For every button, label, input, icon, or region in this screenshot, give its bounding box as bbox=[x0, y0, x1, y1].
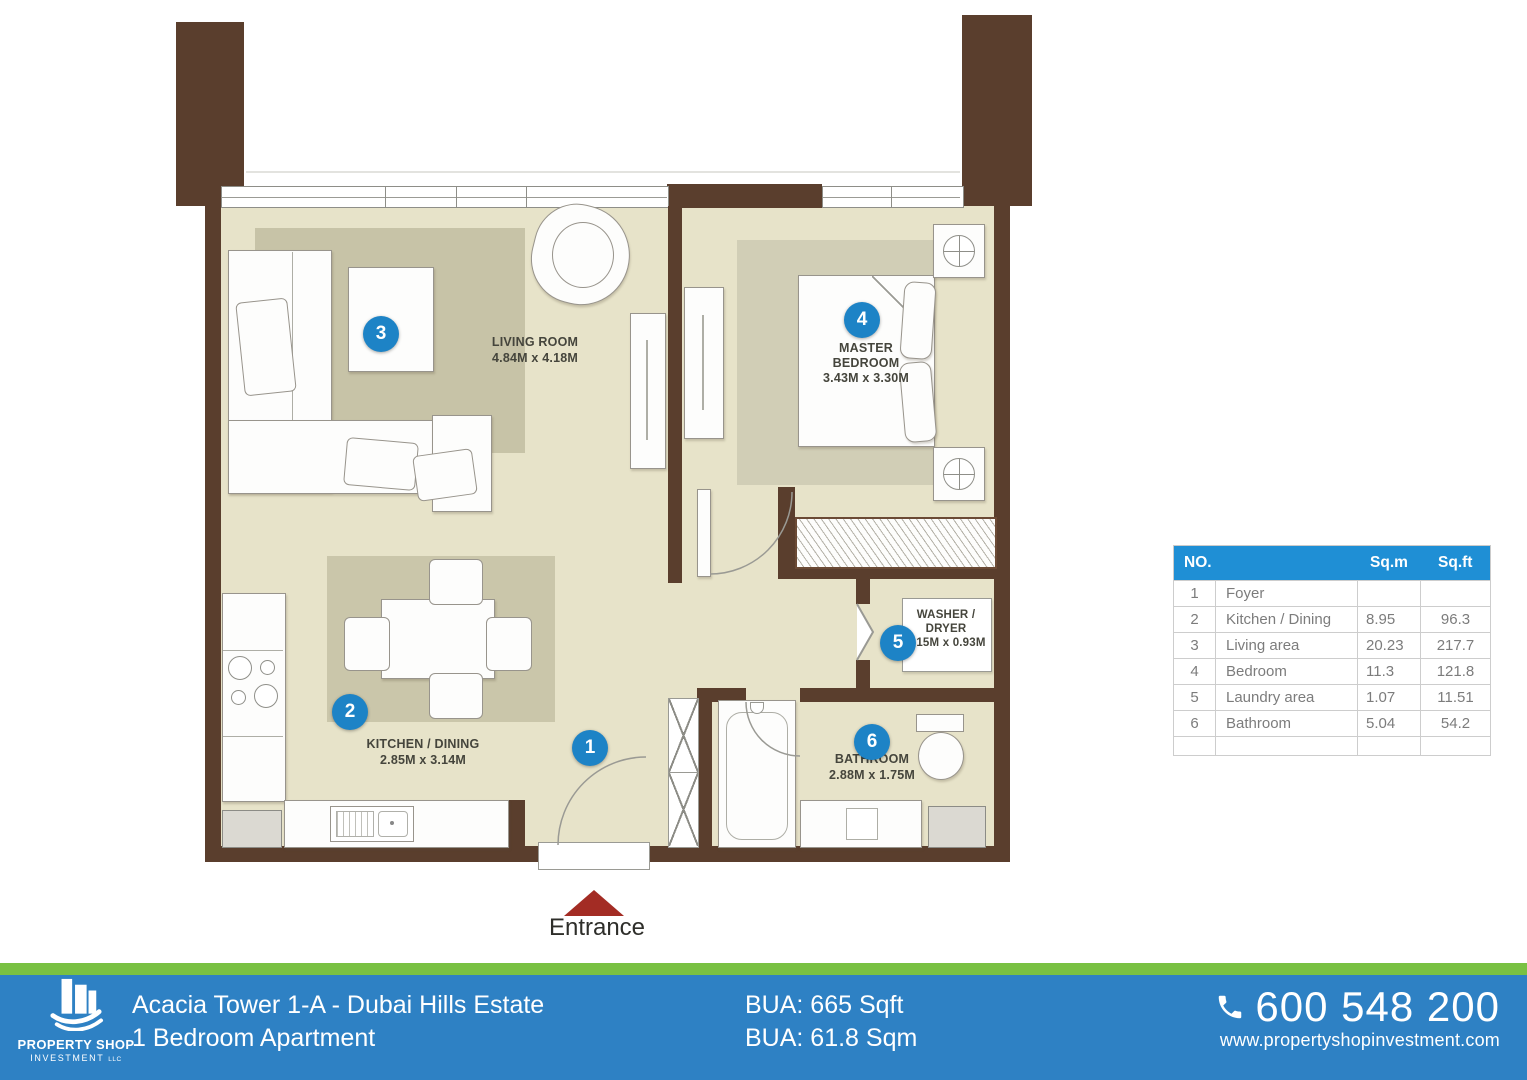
entrance-label: Entrance bbox=[512, 914, 682, 942]
kitchen-dining-label: KITCHEN / DINING 2.85M x 3.14M bbox=[323, 736, 523, 768]
logo-llc: LLC bbox=[108, 1056, 121, 1063]
wall-pillar-left bbox=[176, 22, 244, 206]
tv-console-living bbox=[630, 313, 666, 469]
room-name: DRYER bbox=[902, 622, 990, 636]
wall-pillar-right bbox=[962, 15, 1032, 206]
phone-row: 600 548 200 bbox=[1215, 985, 1500, 1029]
stove-burner bbox=[228, 656, 252, 680]
sink-drainer bbox=[336, 811, 374, 837]
vanity-sink bbox=[846, 808, 878, 840]
cell-sqft: 54.2 bbox=[1421, 711, 1491, 737]
room-dims: 3.43M x 3.30M bbox=[791, 371, 941, 386]
footer-bar: PROPERTY SHOP INVESTMENT LLC Acacia Towe… bbox=[0, 975, 1527, 1080]
room-name: WASHER / bbox=[902, 608, 990, 622]
dining-chair bbox=[429, 673, 483, 719]
stove-burner bbox=[260, 660, 275, 675]
cell-no: 3 bbox=[1174, 633, 1216, 659]
closet-cell bbox=[669, 699, 698, 773]
closet-cell bbox=[669, 773, 698, 846]
room-marker-5-laundry: 5 bbox=[880, 625, 916, 661]
window-pane bbox=[823, 187, 892, 207]
room-name: LIVING ROOM bbox=[435, 334, 635, 350]
cell-sqm: 8.95 bbox=[1358, 607, 1421, 633]
cell-empty bbox=[1216, 737, 1358, 756]
room-marker-3-living: 3 bbox=[363, 316, 399, 352]
company-logo: PROPERTY SHOP INVESTMENT LLC bbox=[14, 977, 138, 1077]
table-row: 2 Kitchen / Dining 8.95 96.3 bbox=[1174, 607, 1491, 633]
project-title-line2: 1 Bedroom Apartment bbox=[132, 1022, 544, 1055]
footer-green-strip bbox=[0, 963, 1527, 975]
project-title-line1: Acacia Tower 1-A - Dubai Hills Estate bbox=[132, 989, 544, 1022]
dining-chair bbox=[344, 617, 390, 671]
col-header-no: NO. bbox=[1174, 546, 1358, 581]
entrance-threshold bbox=[538, 842, 650, 870]
project-title: Acacia Tower 1-A - Dubai Hills Estate 1 … bbox=[132, 989, 544, 1055]
col-header-sqft: Sq.ft bbox=[1421, 546, 1491, 581]
cell-sqm bbox=[1358, 581, 1421, 607]
master-bedroom-label: MASTER BEDROOM 3.43M x 3.30M bbox=[791, 341, 941, 386]
table-row: 4 Bedroom 11.3 121.8 bbox=[1174, 659, 1491, 685]
lamp-icon bbox=[943, 235, 975, 267]
window-bedroom bbox=[822, 186, 964, 208]
room-dims: 2.88M x 1.75M bbox=[772, 767, 972, 783]
cell-sqm: 20.23 bbox=[1358, 633, 1421, 659]
wall-kitchen-stub bbox=[507, 800, 525, 846]
dining-chair bbox=[486, 617, 532, 671]
sofa-cushion bbox=[235, 298, 297, 397]
cell-sqm: 1.07 bbox=[1358, 685, 1421, 711]
table-row: 3 Living area 20.23 217.7 bbox=[1174, 633, 1491, 659]
phone-icon bbox=[1215, 992, 1245, 1022]
table-row: 1 Foyer bbox=[1174, 581, 1491, 607]
bua-sqm: BUA: 61.8 Sqm bbox=[745, 1022, 917, 1055]
dining-table bbox=[381, 599, 495, 679]
cell-empty bbox=[1421, 737, 1491, 756]
room-dims: 2.85M x 3.14M bbox=[323, 752, 523, 768]
armchair-seat bbox=[552, 222, 614, 288]
window-pane bbox=[386, 187, 457, 207]
cell-no: 6 bbox=[1174, 711, 1216, 737]
website-url: www.propertyshopinvestment.com bbox=[1215, 1030, 1500, 1051]
wall-bottom-right bbox=[648, 846, 1010, 862]
wall-foyer-bathroom-divider bbox=[697, 688, 712, 846]
wardrobe bbox=[795, 517, 997, 569]
counter-divider bbox=[223, 736, 283, 737]
sink-drain-dot bbox=[390, 821, 394, 825]
cell-sqm: 5.04 bbox=[1358, 711, 1421, 737]
cell-sqft bbox=[1421, 581, 1491, 607]
cell-no: 4 bbox=[1174, 659, 1216, 685]
dining-chair bbox=[429, 559, 483, 605]
area-table-empty-row bbox=[1174, 737, 1491, 756]
cell-name: Bedroom bbox=[1216, 659, 1358, 685]
cell-name: Bathroom bbox=[1216, 711, 1358, 737]
wall-bottom-left bbox=[205, 846, 540, 862]
cell-empty bbox=[1358, 737, 1421, 756]
kitchen-shaft-box bbox=[222, 810, 282, 848]
wall-laundry-left-bottom bbox=[856, 660, 870, 688]
bedroom-door-leaf bbox=[697, 489, 711, 577]
tv-console-handle bbox=[646, 340, 648, 440]
cell-sqm: 11.3 bbox=[1358, 659, 1421, 685]
cell-sqft: 96.3 bbox=[1421, 607, 1491, 633]
area-table: NO. Sq.m Sq.ft 1 Foyer 2 Kitchen / Dinin… bbox=[1173, 545, 1491, 756]
window-pane bbox=[892, 187, 960, 207]
cell-name: Living area bbox=[1216, 633, 1358, 659]
window-living bbox=[221, 186, 669, 208]
wall-top-center bbox=[667, 184, 822, 208]
cell-sqft: 11.51 bbox=[1421, 685, 1491, 711]
living-room-label: LIVING ROOM 4.84M x 4.18M bbox=[435, 334, 635, 366]
bathroom-shaft-box bbox=[928, 806, 986, 848]
area-table-header-row: NO. Sq.m Sq.ft bbox=[1174, 546, 1491, 581]
window-pane bbox=[527, 187, 667, 207]
balcony-edge bbox=[246, 171, 960, 173]
lamp-icon bbox=[943, 458, 975, 490]
room-name: KITCHEN / DINING bbox=[323, 736, 523, 752]
col-header-sqm: Sq.m bbox=[1358, 546, 1421, 581]
cell-name: Foyer bbox=[1216, 581, 1358, 607]
cell-sqft: 121.8 bbox=[1421, 659, 1491, 685]
stove-burner bbox=[231, 690, 246, 705]
logo-investment: INVESTMENT bbox=[30, 1053, 104, 1063]
floorplan-canvas: LIVING ROOM 4.84M x 4.18M MASTER BEDROOM… bbox=[0, 0, 1527, 1080]
room-marker-4-bedroom: 4 bbox=[844, 302, 880, 338]
room-marker-2-kitchen: 2 bbox=[332, 694, 368, 730]
toilet-tank bbox=[916, 714, 964, 732]
counter-divider bbox=[223, 650, 283, 651]
cell-no: 1 bbox=[1174, 581, 1216, 607]
window-pane bbox=[222, 187, 386, 207]
entrance-arrow-icon bbox=[564, 890, 624, 916]
cell-name: Laundry area bbox=[1216, 685, 1358, 711]
buildings-waves-icon bbox=[47, 977, 105, 1031]
foyer-closet bbox=[668, 698, 699, 848]
room-name: MASTER bbox=[791, 341, 941, 356]
bua-sqft: BUA: 665 Sqft bbox=[745, 989, 917, 1022]
wall-left bbox=[205, 190, 221, 862]
wall-living-bedroom-divider bbox=[668, 206, 682, 583]
room-dims: 4.84M x 4.18M bbox=[435, 350, 635, 366]
dresser-handle bbox=[702, 315, 704, 410]
table-row: 5 Laundry area 1.07 11.51 bbox=[1174, 685, 1491, 711]
logo-text-line2: INVESTMENT LLC bbox=[14, 1053, 138, 1063]
cell-name: Kitchen / Dining bbox=[1216, 607, 1358, 633]
table-row: 6 Bathroom 5.04 54.2 bbox=[1174, 711, 1491, 737]
room-name: BEDROOM bbox=[791, 356, 941, 371]
bua-info: BUA: 665 Sqft BUA: 61.8 Sqm bbox=[745, 989, 917, 1055]
sofa-cushion bbox=[412, 448, 478, 502]
wall-bathroom-top-right bbox=[800, 688, 994, 702]
room-marker-6-bathroom: 6 bbox=[854, 724, 890, 760]
cell-no: 2 bbox=[1174, 607, 1216, 633]
wall-laundry-left-top bbox=[856, 579, 870, 604]
cell-empty bbox=[1174, 737, 1216, 756]
cell-sqft: 217.7 bbox=[1421, 633, 1491, 659]
room-marker-1-foyer: 1 bbox=[572, 730, 608, 766]
contact-block: 600 548 200 www.propertyshopinvestment.c… bbox=[1215, 985, 1500, 1051]
window-pane bbox=[457, 187, 527, 207]
logo-text-line1: PROPERTY SHOP bbox=[14, 1037, 138, 1052]
bedroom-dresser bbox=[684, 287, 724, 439]
sofa-cushion bbox=[343, 437, 419, 491]
stove-burner bbox=[254, 684, 278, 708]
phone-number: 600 548 200 bbox=[1255, 985, 1500, 1029]
cell-no: 5 bbox=[1174, 685, 1216, 711]
